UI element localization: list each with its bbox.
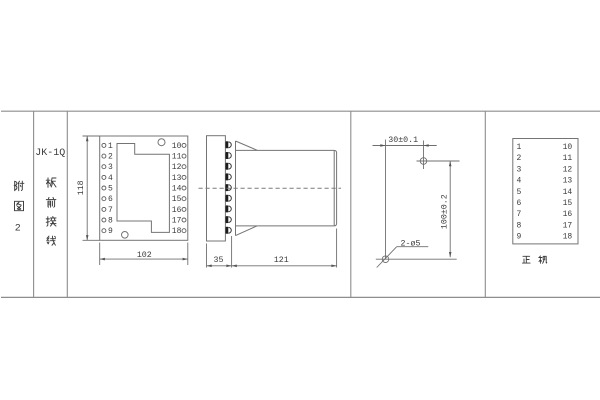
svg-text:2: 2 [517,154,522,163]
svg-text:3: 3 [108,163,113,172]
svg-text:9: 9 [517,233,522,242]
svg-text:30±0.1: 30±0.1 [388,136,418,145]
svg-text:17: 17 [172,217,182,226]
svg-text:7: 7 [517,210,522,219]
svg-text:14: 14 [563,188,573,197]
svg-text:18: 18 [172,227,182,236]
svg-text:11: 11 [563,154,573,163]
svg-text:4: 4 [108,174,113,183]
svg-text:JK-1Q: JK-1Q [35,148,65,159]
svg-text:9: 9 [108,227,113,236]
svg-text:12: 12 [563,165,573,174]
svg-text:13: 13 [172,174,182,183]
svg-text:5: 5 [517,188,522,197]
svg-text:2: 2 [15,224,21,235]
svg-text:2: 2 [108,153,113,162]
svg-text:8: 8 [108,217,113,226]
svg-text:13: 13 [563,177,573,186]
svg-text:16: 16 [563,210,573,219]
svg-text:1: 1 [108,142,113,151]
svg-text:12: 12 [172,163,182,172]
svg-text:15: 15 [563,199,573,208]
svg-text:16: 16 [172,206,182,215]
svg-text:11: 11 [172,153,182,162]
svg-text:18: 18 [563,233,573,242]
svg-text:10: 10 [563,143,573,152]
svg-text:10: 10 [172,142,182,151]
svg-text:6: 6 [108,195,113,204]
svg-text:14: 14 [172,185,182,194]
svg-text:102: 102 [137,251,152,260]
svg-text:6: 6 [517,199,522,208]
svg-text:121: 121 [274,256,289,265]
svg-text:118: 118 [77,180,86,195]
svg-text:4: 4 [517,177,522,186]
svg-text:7: 7 [108,206,113,215]
svg-text:100±0.2: 100±0.2 [441,194,450,229]
svg-text:1: 1 [517,143,522,152]
svg-text:3: 3 [517,165,522,174]
svg-text:15: 15 [172,195,182,204]
svg-text:35: 35 [214,256,224,265]
svg-text:17: 17 [563,222,573,231]
svg-text:8: 8 [517,222,522,231]
svg-text:5: 5 [108,185,113,194]
svg-text:2-ø5: 2-ø5 [401,240,421,249]
